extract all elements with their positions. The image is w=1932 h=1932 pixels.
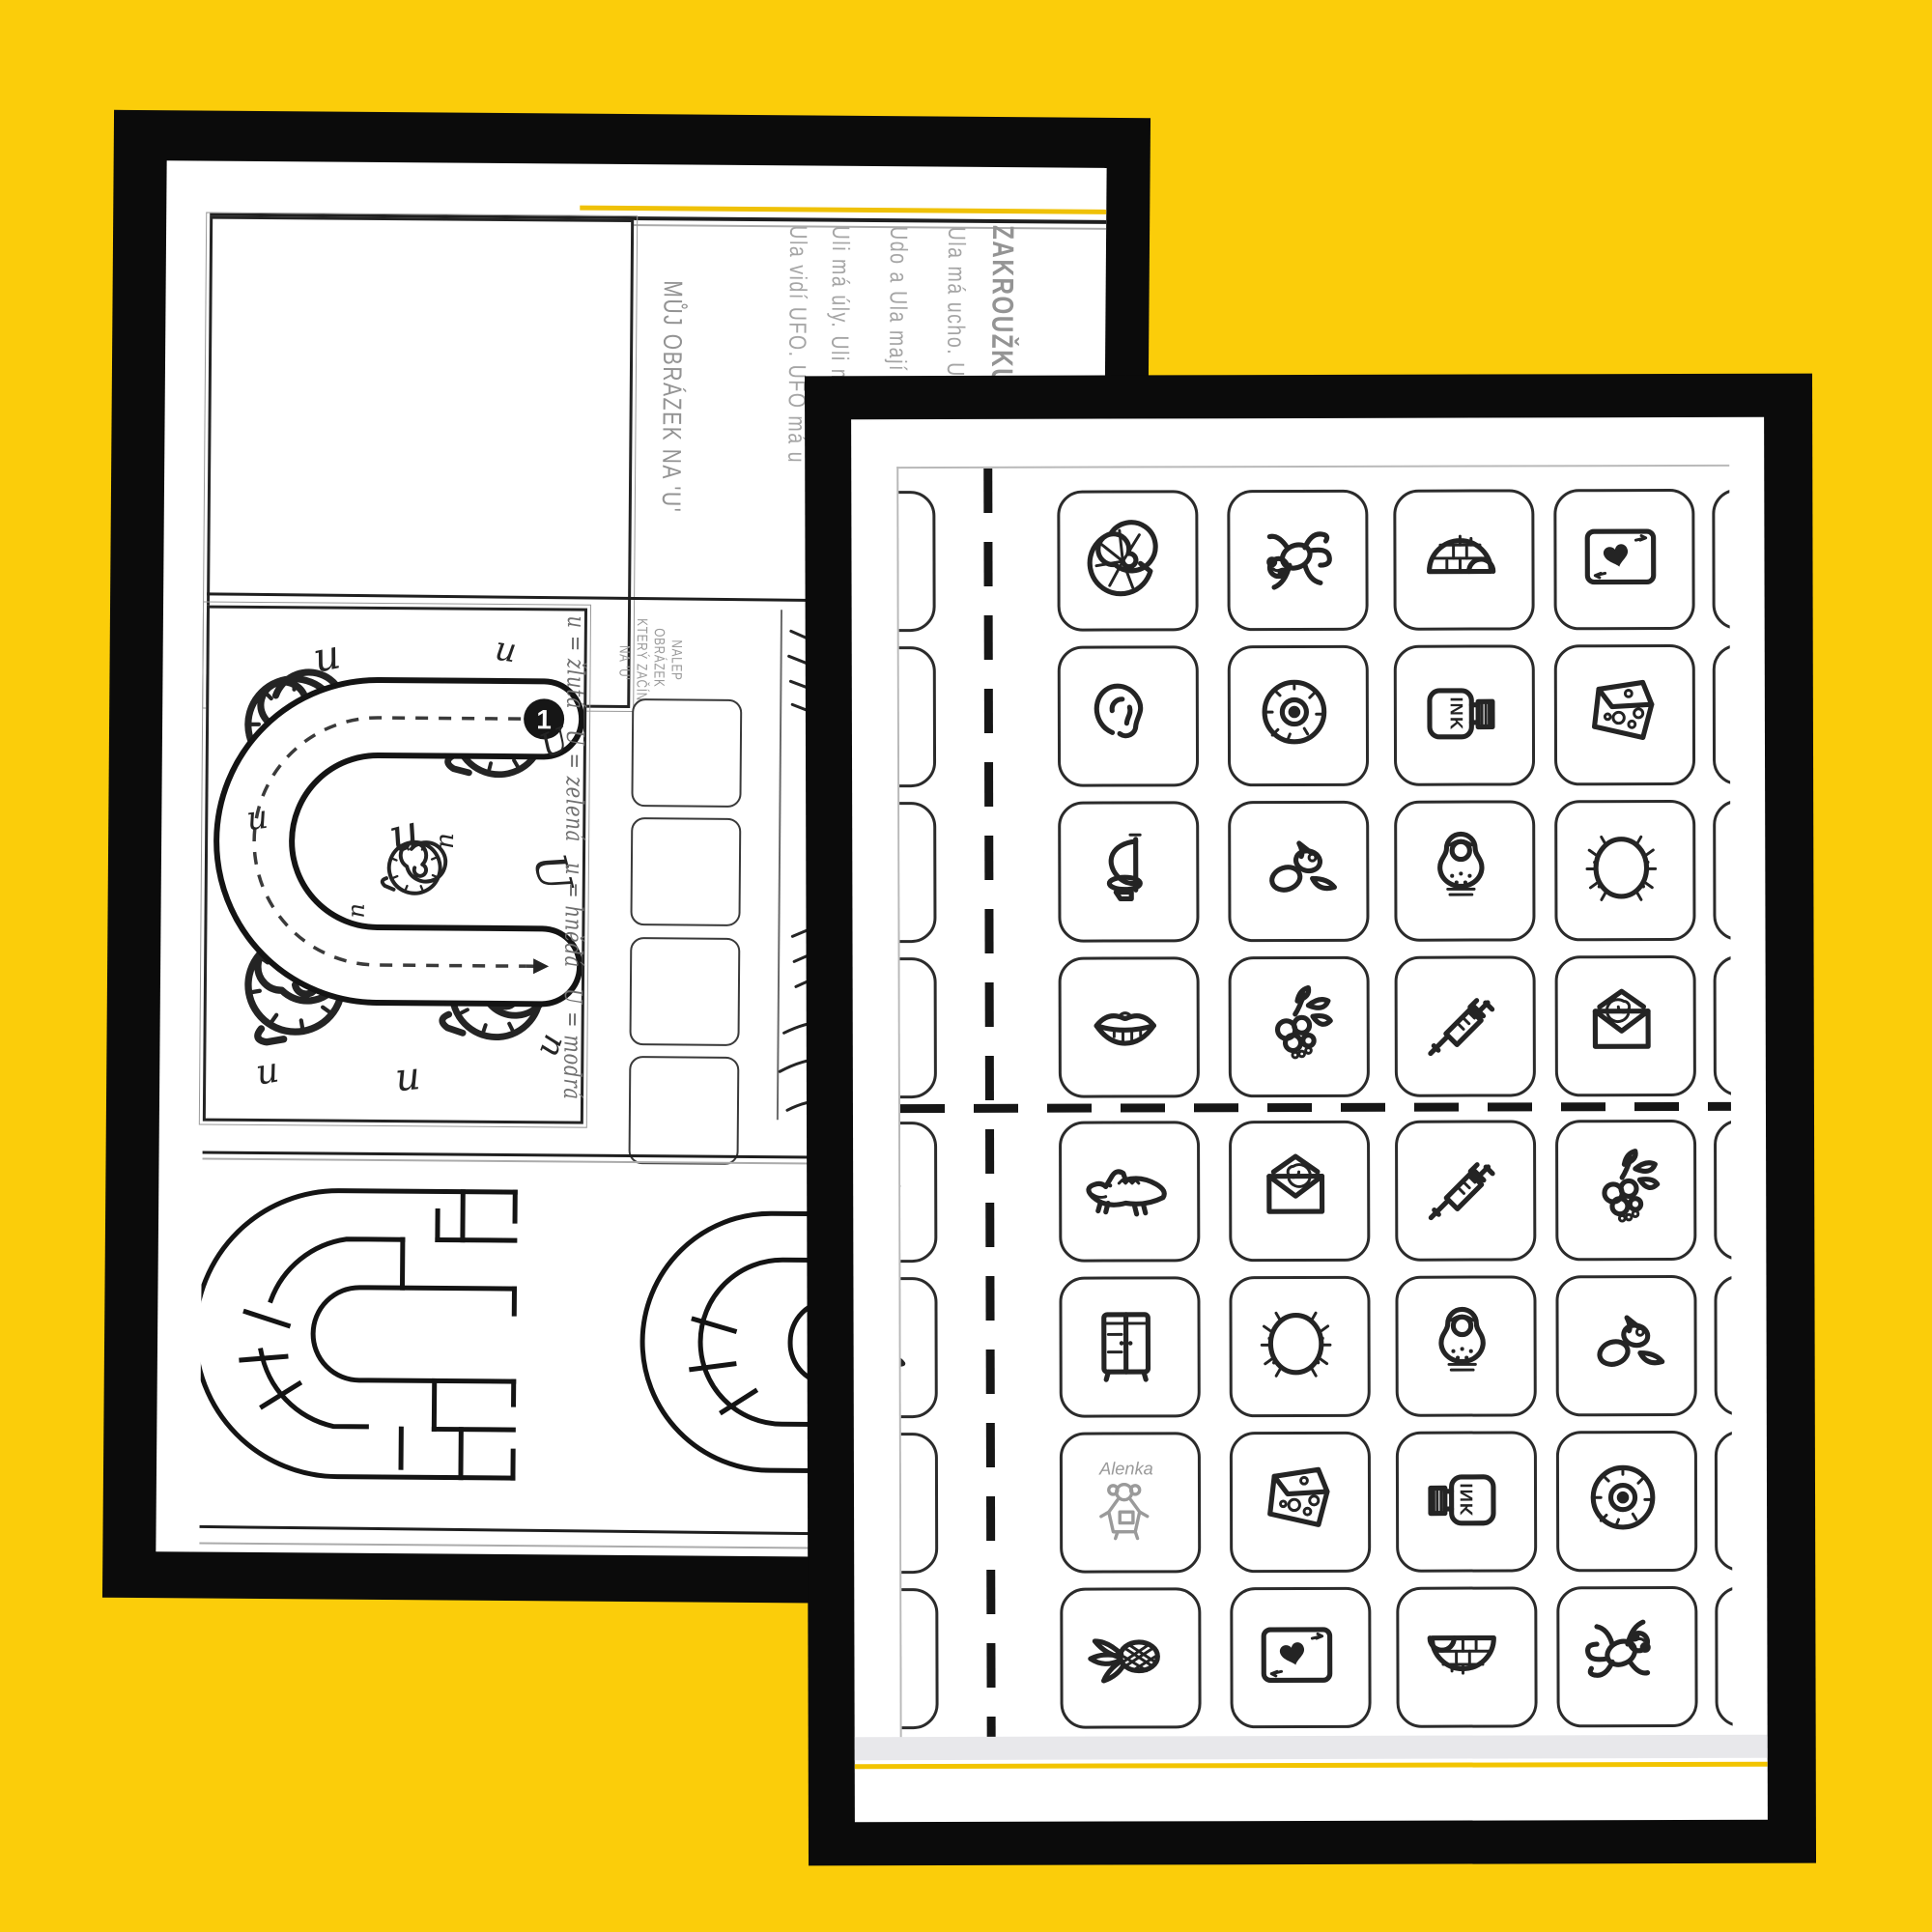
urinal-icon [896, 658, 917, 768]
cheese-icon [1566, 656, 1676, 766]
fruit-icon [1725, 1131, 1733, 1241]
monkey-icon [1568, 1598, 1678, 1708]
color-legend: u = žlutá U = zelená u = hnědá U = modrá [558, 615, 590, 1100]
paste-box-2 [630, 817, 741, 926]
doll-icon [1406, 811, 1516, 922]
shell-icon [1723, 500, 1732, 611]
tile-syringe [1395, 955, 1536, 1096]
olives-icon [1567, 1287, 1677, 1397]
right-page-accent-line [855, 1762, 1768, 1769]
tile-urinal [1058, 801, 1199, 942]
trace-letter: u [244, 801, 270, 837]
tile-pineapple [1060, 1587, 1201, 1728]
tile-cheese [1554, 644, 1695, 785]
tile-eyeball [1556, 1431, 1697, 1572]
ear-icon [1069, 657, 1179, 767]
tile-shell [1057, 490, 1198, 631]
lips-icon [1070, 968, 1180, 1078]
tile-wreath [896, 802, 936, 943]
sentence-1: Ula má ucho. Ud [941, 227, 970, 390]
olives-icon [1239, 812, 1350, 923]
bottom-gray-strip [855, 1735, 1768, 1760]
tile-cheese [1230, 1432, 1371, 1573]
right-worksheet-page [851, 417, 1768, 1822]
tile-igloo [1396, 1586, 1537, 1727]
tile-cheese [1713, 644, 1733, 785]
card-icon [1565, 500, 1675, 611]
eyeball-icon [896, 969, 918, 1079]
left-page-title: MŮJ OBRÁZEK NA 'U' [656, 280, 688, 513]
tile-shell [1712, 489, 1732, 630]
trace-letter: u [348, 903, 371, 919]
tile-igloo [1393, 489, 1534, 630]
tile-lips [1059, 956, 1200, 1097]
paste-label-line4: NA 'U' [615, 645, 632, 681]
trace-letter: u [435, 833, 460, 849]
sentence-3: Uli má úly. Uli m [825, 226, 854, 386]
fruit-icon [1567, 1131, 1677, 1241]
doll-icon [896, 1444, 919, 1554]
ink-icon [1406, 656, 1516, 766]
tile-doll [1394, 800, 1535, 941]
left-page-accent-line [580, 206, 1106, 214]
card-icon [1726, 1598, 1732, 1708]
olives-icon [1725, 1287, 1732, 1397]
tile-alenka [1060, 1432, 1201, 1573]
paste-box-4 [629, 1056, 740, 1165]
tile-olives [896, 1277, 938, 1418]
tile-grid [896, 465, 1732, 1739]
doll-icon [1406, 1287, 1517, 1397]
fruit-icon [896, 1133, 918, 1243]
tile-crocodile [1059, 1121, 1200, 1262]
cheese-icon [1726, 1442, 1733, 1552]
crocodile-icon [1070, 1132, 1180, 1242]
envelope-icon [1240, 1132, 1350, 1242]
tile-monkey [1556, 1586, 1697, 1727]
syringe-icon [1406, 1131, 1517, 1241]
paste-label-line3: KTERÝ ZAČÍNÁ [633, 618, 650, 710]
igloo-icon [1407, 1598, 1518, 1708]
tile-wreath [1713, 800, 1733, 941]
urinal-icon [1069, 812, 1179, 923]
cheese-icon [1241, 1443, 1351, 1553]
mockup-stage: INK [0, 0, 1932, 1932]
paste-label-line2: OBRÁZEK [650, 628, 667, 688]
tile-wardrobe [1059, 1276, 1200, 1417]
lips-icon [1725, 967, 1733, 1077]
right-worksheet-frame [805, 374, 1816, 1866]
envelope-icon [1567, 967, 1677, 1077]
tile-urinal [896, 646, 936, 787]
tile-ink [1396, 1431, 1537, 1572]
tile-wreath [1229, 1276, 1370, 1417]
tile-card [896, 491, 935, 632]
tile-fruit [1714, 1120, 1733, 1261]
tile-wreath [1554, 800, 1695, 941]
monkey-icon [896, 1600, 919, 1710]
tile-doll [1395, 1275, 1536, 1416]
tile-syringe [1395, 1120, 1536, 1261]
trace-box: 1 uuUuuuUuuuu [203, 606, 587, 1124]
eyeball-icon [1568, 1442, 1678, 1552]
ink-icon [1407, 1442, 1518, 1552]
tile-doll [896, 1433, 938, 1574]
shell-icon [1068, 501, 1179, 611]
tile-card [1230, 1587, 1371, 1728]
tile-card [1553, 489, 1694, 630]
paste-label-line1: NALEP [668, 639, 684, 680]
paste-box-3 [629, 937, 740, 1046]
alenka-icon [1071, 1443, 1181, 1553]
tile-olives [1714, 1275, 1732, 1416]
paste-box-1 [631, 698, 742, 808]
fruit-icon [1240, 968, 1350, 1078]
eyeball-icon [1239, 657, 1350, 767]
olives-icon [896, 1289, 919, 1399]
tile-olives [1555, 1275, 1696, 1416]
card-icon [1241, 1599, 1351, 1709]
tile-fruit [1229, 956, 1370, 1097]
wardrobe-icon [1070, 1288, 1180, 1398]
tile-lips [1714, 955, 1733, 1096]
pineapple-icon [1071, 1599, 1181, 1709]
trace-letter: u [393, 1057, 422, 1097]
cheese-icon [1724, 656, 1733, 766]
tile-envelope [1555, 955, 1696, 1096]
tile-fruit [896, 1122, 937, 1263]
tile-cheese [1715, 1431, 1733, 1572]
wreath-icon [1240, 1288, 1350, 1398]
tile-olives [1228, 801, 1369, 942]
wreath-icon [1566, 811, 1676, 922]
card-icon [896, 502, 916, 612]
tile-eyeball [896, 957, 937, 1098]
wreath-icon [1724, 811, 1733, 922]
syringe-icon [1406, 967, 1517, 1077]
tile-ink [1394, 644, 1535, 785]
tile-ear [1058, 645, 1199, 786]
tile-fruit [1555, 1120, 1696, 1261]
wreath-icon [896, 813, 917, 923]
tile-card [1715, 1586, 1732, 1727]
tile-eyeball [1228, 645, 1369, 786]
sentence-2: Udo a Ula mají [883, 226, 912, 372]
igloo-icon [1405, 500, 1515, 611]
monkey-icon [1238, 501, 1349, 611]
tile-monkey [1227, 490, 1368, 631]
tile-monkey [896, 1588, 938, 1729]
horizontal-cut-line [900, 1102, 1731, 1113]
tile-envelope [1229, 1121, 1370, 1262]
